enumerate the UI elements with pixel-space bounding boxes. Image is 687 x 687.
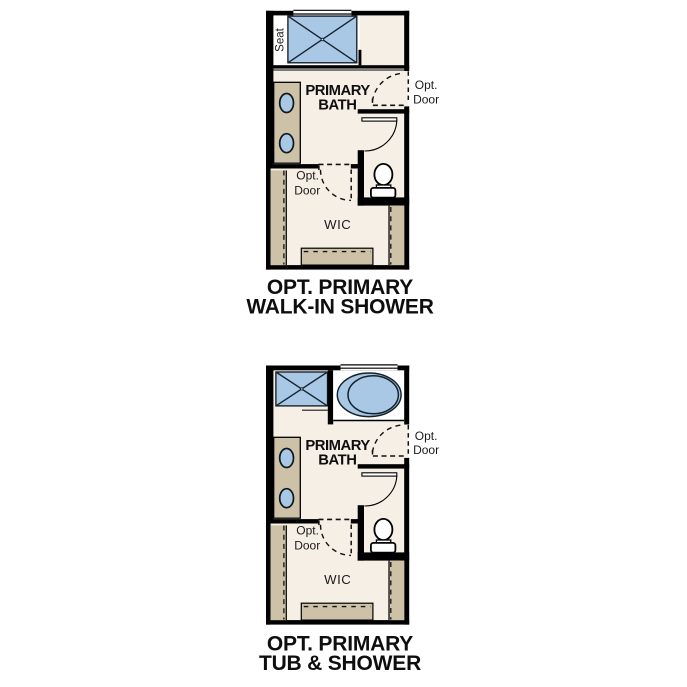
svg-text:TUB & SHOWER: TUB & SHOWER <box>259 652 421 675</box>
svg-text:Opt.: Opt. <box>296 169 319 183</box>
svg-text:Door: Door <box>294 184 320 198</box>
svg-text:Opt.: Opt. <box>415 429 438 443</box>
svg-text:Door: Door <box>413 443 439 457</box>
svg-text:BATH: BATH <box>318 97 356 113</box>
svg-text:Opt.: Opt. <box>415 78 438 92</box>
svg-text:Door: Door <box>413 93 439 107</box>
svg-text:Seat: Seat <box>274 27 286 51</box>
svg-text:BATH: BATH <box>318 452 356 468</box>
svg-text:Door: Door <box>294 539 320 553</box>
svg-text:WIC: WIC <box>324 572 351 587</box>
svg-text:WIC: WIC <box>324 217 351 232</box>
svg-text:Opt.: Opt. <box>296 524 319 538</box>
svg-text:WALK-IN SHOWER: WALK-IN SHOWER <box>246 295 433 318</box>
